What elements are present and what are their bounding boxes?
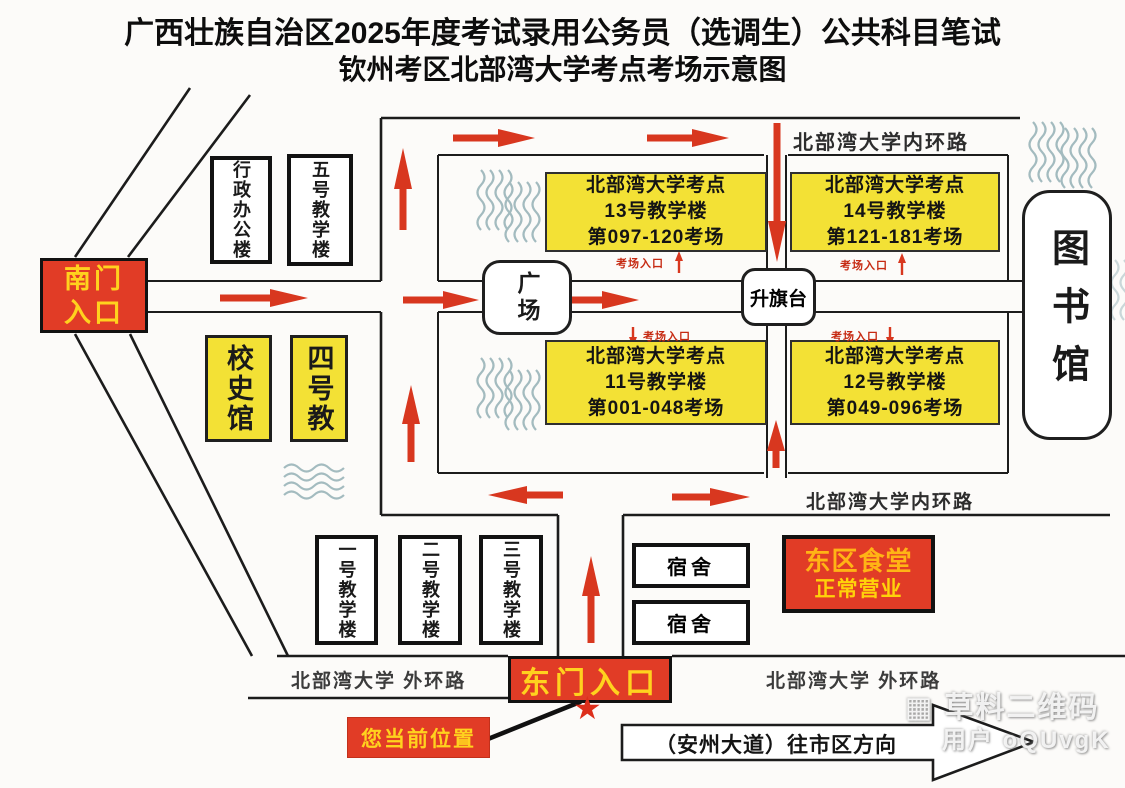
library-label: 图书馆 — [1040, 228, 1095, 402]
teaching2-label: 二号教学楼 — [417, 540, 443, 640]
exam-building-12: 北部湾大学考点 12号教学楼 第049-096考场 — [790, 340, 1000, 425]
building-teaching-4: 四号教 — [290, 335, 348, 442]
teaching3-label: 三号教学楼 — [498, 540, 524, 640]
current-location-star-icon: ★ — [573, 692, 602, 724]
current-location-label: 您当前位置 — [361, 723, 476, 753]
exam-building-name: 14号教学楼 — [843, 199, 946, 225]
south-gate-label: 南门入口 — [62, 262, 126, 330]
plaza-label: 广场 — [510, 271, 544, 325]
building-teaching-5: 五号教学楼 — [287, 154, 353, 266]
exam-site-name: 北部湾大学考点 — [825, 173, 965, 199]
exam-room-range: 第121-181考场 — [827, 225, 964, 251]
road-label-inner-ring-bottom: 北部湾大学内环路 — [806, 487, 974, 514]
dormitory-label: 宿舍 — [667, 608, 715, 637]
exam-site-name: 北部湾大学考点 — [586, 344, 726, 370]
exam-building-name: 13号教学楼 — [604, 199, 707, 225]
building-teaching-2: 二号教学楼 — [398, 535, 462, 645]
dormitory-label: 宿舍 — [667, 551, 715, 580]
exam-building-name: 11号教学楼 — [605, 370, 707, 396]
teaching4-label: 四号教 — [300, 344, 339, 434]
avenue-direction-label: （安州大道）往市区方向 — [630, 729, 922, 759]
page-title-line1: 广西壮族自治区2025年度考试录用公务员（选调生）公共科目笔试 — [0, 8, 1125, 52]
history-hall-label: 校史馆 — [219, 344, 258, 434]
exam-entrance-label-12: 考场入口 — [831, 328, 879, 344]
watermark-user: 用户 oQUvgK — [942, 720, 1111, 755]
exam-room-range: 第097-120考场 — [588, 225, 725, 251]
road-label-inner-ring-top: 北部湾大学内环路 — [793, 126, 969, 155]
canteen-name: 东区食堂 — [804, 545, 912, 578]
east-canteen: 东区食堂 正常营业 — [782, 535, 935, 613]
canteen-status: 正常营业 — [815, 577, 903, 603]
exam-building-13: 北部湾大学考点 13号教学楼 第097-120考场 — [545, 172, 767, 252]
exam-site-map: 广西壮族自治区2025年度考试录用公务员（选调生）公共科目笔试 钦州考区北部湾大… — [0, 0, 1125, 788]
plaza: 广场 — [482, 260, 572, 335]
exam-site-name: 北部湾大学考点 — [825, 344, 965, 370]
qr-code-icon: ▦ — [905, 692, 934, 724]
flag-stage-label: 升旗台 — [750, 284, 807, 311]
library: 图书馆 — [1022, 190, 1112, 440]
dormitory-1: 宿舍 — [632, 543, 750, 588]
exam-building-14: 北部湾大学考点 14号教学楼 第121-181考场 — [790, 172, 1000, 252]
building-admin-office: 行政办公楼 — [210, 156, 272, 264]
building-admin-label: 行政办公楼 — [228, 160, 254, 260]
exam-building-11: 北部湾大学考点 11号教学楼 第001-048考场 — [545, 340, 767, 425]
building-teaching-3: 三号教学楼 — [479, 535, 543, 645]
exam-entrance-label-13: 考场入口 — [616, 255, 664, 271]
exam-entrance-label-11: 考场入口 — [643, 328, 691, 344]
exam-room-range: 第049-096考场 — [827, 396, 964, 422]
exam-building-name: 12号教学楼 — [843, 370, 946, 396]
location-pointer-line — [483, 702, 580, 741]
building-teaching-1: 一号教学楼 — [315, 535, 378, 645]
building-history-hall: 校史馆 — [205, 335, 272, 442]
exam-site-name: 北部湾大学考点 — [586, 173, 726, 199]
current-location-badge: 您当前位置 — [347, 717, 490, 758]
page-title-line2: 钦州考区北部湾大学考点考场示意图 — [0, 48, 1125, 88]
building-teaching5-label: 五号教学楼 — [307, 160, 333, 260]
teaching1-label: 一号教学楼 — [334, 540, 360, 640]
south-gate-entrance: 南门入口 — [40, 258, 148, 333]
exam-entrance-label-14: 考场入口 — [840, 257, 888, 273]
road-label-outer-ring-left: 北部湾大学 外环路 — [291, 666, 466, 693]
dormitory-2: 宿舍 — [632, 600, 750, 645]
flag-raising-stage: 升旗台 — [741, 268, 816, 326]
exam-room-range: 第001-048考场 — [588, 396, 725, 422]
